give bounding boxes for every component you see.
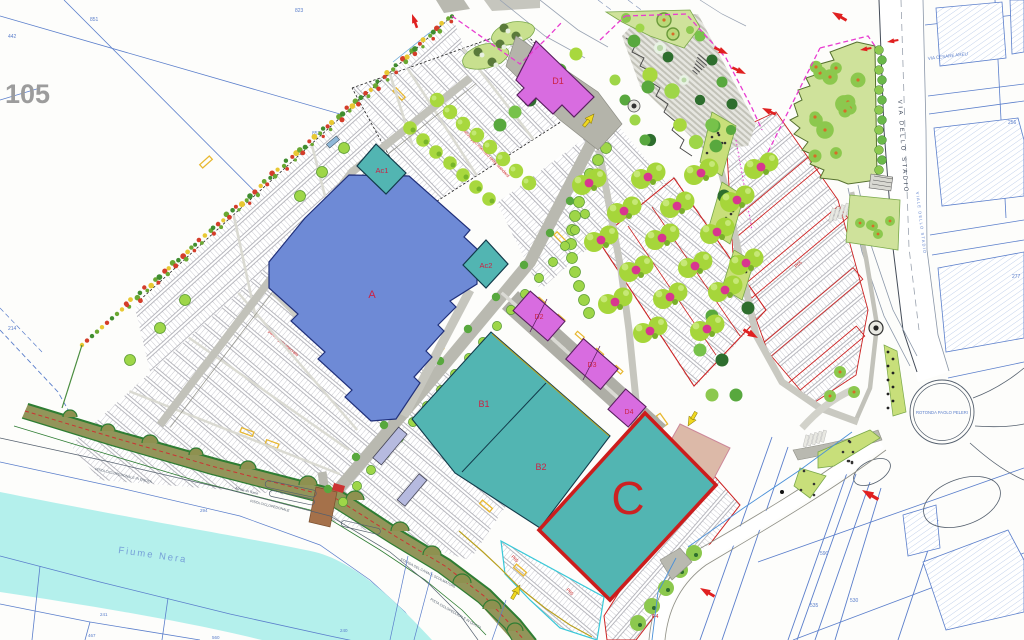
svg-text:240: 240 bbox=[340, 628, 348, 633]
svg-text:256: 256 bbox=[1008, 120, 1017, 126]
svg-text:ROTONDA PAOLO PELERI: ROTONDA PAOLO PELERI bbox=[916, 410, 968, 415]
svg-text:294: 294 bbox=[200, 508, 208, 513]
svg-text:535: 535 bbox=[810, 603, 819, 609]
svg-text:B2: B2 bbox=[535, 462, 546, 472]
svg-text:D4: D4 bbox=[625, 409, 634, 416]
svg-text:823: 823 bbox=[295, 8, 304, 14]
svg-text:B1: B1 bbox=[478, 399, 489, 409]
svg-text:241: 241 bbox=[100, 612, 108, 617]
svg-text:D1: D1 bbox=[552, 76, 564, 86]
svg-text:C: C bbox=[611, 472, 644, 524]
svg-text:Ac2: Ac2 bbox=[480, 261, 493, 270]
svg-text:D2: D2 bbox=[535, 314, 544, 321]
svg-text:105: 105 bbox=[5, 79, 50, 109]
svg-text:560: 560 bbox=[212, 635, 220, 640]
svg-text:Ac1: Ac1 bbox=[376, 166, 389, 175]
svg-text:851: 851 bbox=[90, 17, 99, 23]
svg-text:D3: D3 bbox=[588, 362, 597, 369]
svg-text:442: 442 bbox=[8, 34, 17, 40]
svg-text:A: A bbox=[368, 289, 376, 301]
svg-text:277: 277 bbox=[1012, 274, 1021, 280]
svg-text:530: 530 bbox=[850, 598, 859, 604]
svg-text:214: 214 bbox=[8, 326, 17, 332]
svg-text:467: 467 bbox=[88, 633, 96, 638]
svg-text:590: 590 bbox=[820, 551, 829, 557]
